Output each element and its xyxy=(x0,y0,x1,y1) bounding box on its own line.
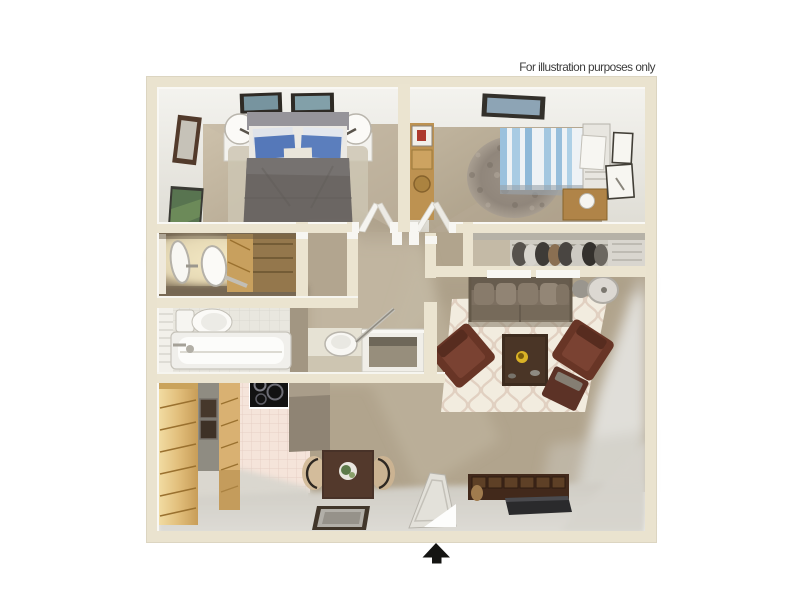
svg-text:For illustration purposes only: For illustration purposes only xyxy=(519,60,655,74)
